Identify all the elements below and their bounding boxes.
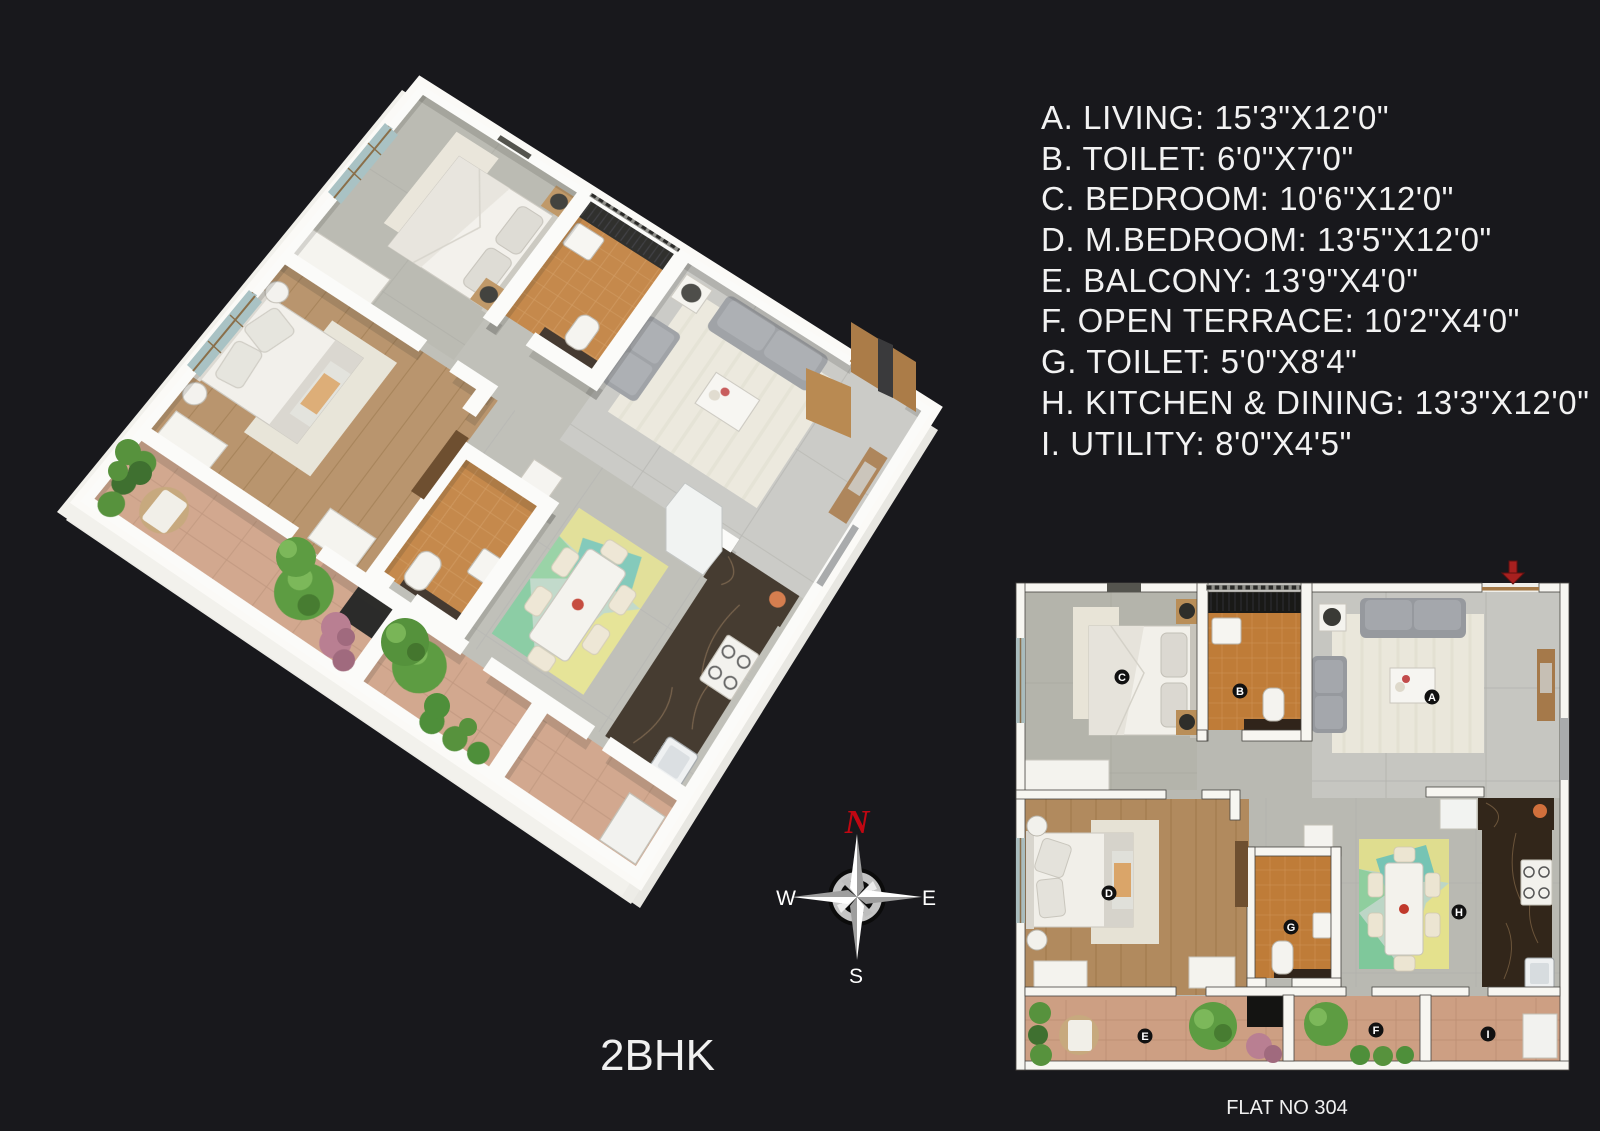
svg-text:H. KITCHEN & DINING: 13'3"X12': H. KITCHEN & DINING: 13'3"X12'0"	[1041, 384, 1590, 421]
svg-text:G: G	[1287, 922, 1296, 934]
svg-text:E: E	[1141, 1031, 1148, 1043]
svg-text:I: I	[1486, 1029, 1489, 1041]
svg-text:E. BALCONY: 13'9"X4'0": E. BALCONY: 13'9"X4'0"	[1041, 262, 1419, 299]
svg-text:N: N	[844, 804, 871, 841]
svg-text:FLAT NO 304: FLAT NO 304	[1226, 1097, 1348, 1119]
svg-text:H: H	[1455, 907, 1463, 919]
svg-text:F. OPEN TERRACE: 10'2"X4'0": F. OPEN TERRACE: 10'2"X4'0"	[1041, 302, 1520, 339]
svg-text:G. TOILET: 5'0"X8'4": G. TOILET: 5'0"X8'4"	[1041, 343, 1357, 380]
svg-text:E: E	[922, 887, 936, 910]
svg-text:S: S	[849, 965, 863, 988]
svg-text:F: F	[1373, 1025, 1380, 1037]
svg-text:C: C	[1118, 672, 1126, 684]
svg-text:B: B	[1236, 686, 1244, 698]
svg-text:A: A	[1428, 692, 1436, 704]
svg-text:A. LIVING: 15'3"X12'0": A. LIVING: 15'3"X12'0"	[1041, 99, 1389, 136]
svg-text:D. M.BEDROOM: 13'5"X12'0": D. M.BEDROOM: 13'5"X12'0"	[1041, 221, 1492, 258]
svg-text:W: W	[776, 887, 796, 910]
svg-text:D: D	[1105, 888, 1113, 900]
svg-text:2BHK: 2BHK	[600, 1031, 715, 1080]
svg-text:I. UTILITY: 8'0"X4'5": I. UTILITY: 8'0"X4'5"	[1041, 425, 1352, 462]
svg-text:C. BEDROOM: 10'6"X12'0": C. BEDROOM: 10'6"X12'0"	[1041, 180, 1454, 217]
svg-text:B. TOILET: 6'0"X7'0": B. TOILET: 6'0"X7'0"	[1041, 140, 1354, 177]
